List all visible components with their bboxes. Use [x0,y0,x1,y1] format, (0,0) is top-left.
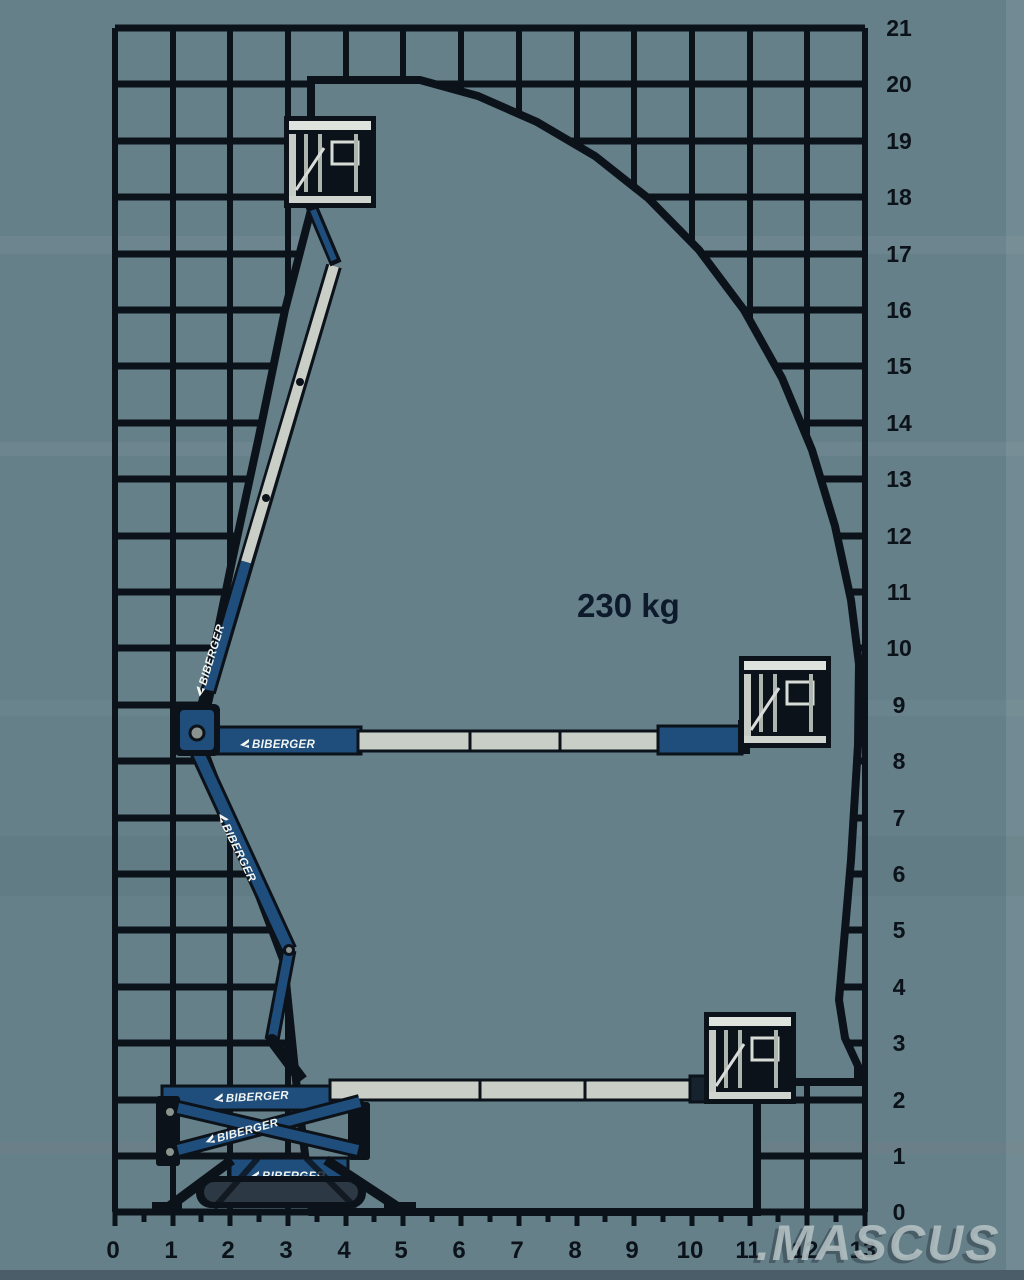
y-axis-label: 20 [886,71,912,97]
y-axis-label: 13 [886,466,912,492]
basket-low [704,1012,796,1104]
y-axis-label: 11 [887,579,912,605]
capacity-label: 230 kg [577,587,680,624]
arm-pivot [266,1034,278,1046]
x-axis-label: 8 [568,1237,581,1264]
mascus-watermark-text: .MASCUS [756,1215,1001,1271]
x-axis-label: 2 [221,1237,234,1264]
x-axis-label: 9 [625,1237,638,1264]
outrigger-foot [152,1202,182,1211]
x-axis-label: 3 [279,1237,292,1264]
x-axis-label: 1 [164,1237,177,1264]
y-axis-label: 10 [886,635,912,661]
y-axis-label: 16 [886,297,912,323]
y-axis-label: 14 [886,410,912,436]
mascus-watermark: .MASCUS .MASCUS [752,1215,1001,1274]
x-axis-label: 0 [106,1237,119,1264]
x-axis-label: 10 [677,1237,704,1264]
y-axis-label: 19 [886,128,912,154]
telescope-section [330,1080,698,1100]
y-axis-label: 15 [886,353,912,379]
brand-label [240,739,315,751]
y-axis-label: 17 [886,241,912,267]
y-axis-label: 7 [893,805,906,831]
y-axis-label: 2 [893,1087,906,1113]
y-axis-label: 1 [893,1143,906,1169]
y-axis-label: 3 [893,1030,906,1056]
y-axis-label: 4 [893,974,906,1000]
x-axis-label: 6 [452,1237,465,1264]
x-axis-label: 5 [394,1237,407,1264]
reach-diagram: BIBERGER 230 kg [0,0,1024,1280]
y-axis-label: 6 [893,861,906,887]
y-axis-label: 5 [893,917,906,943]
y-axis-label: 12 [886,523,912,549]
y-axis-label: 8 [893,748,906,774]
outrigger-foot [384,1202,416,1211]
boom-head [658,726,742,754]
elbow-joint [174,704,220,756]
x-axis-label: 4 [337,1237,351,1264]
telescope-section [358,731,660,751]
basket-top [284,116,376,208]
boom-joint [262,494,270,502]
y-axis-label: 9 [893,692,906,718]
basket-mid [739,656,831,748]
y-axis-label: 21 [886,15,912,41]
reach-diagram-page: BIBERGER 230 kg [0,0,1024,1280]
y-axis-label: 18 [886,184,912,210]
boom-joint [296,378,304,386]
x-axis-label: 7 [510,1237,523,1264]
